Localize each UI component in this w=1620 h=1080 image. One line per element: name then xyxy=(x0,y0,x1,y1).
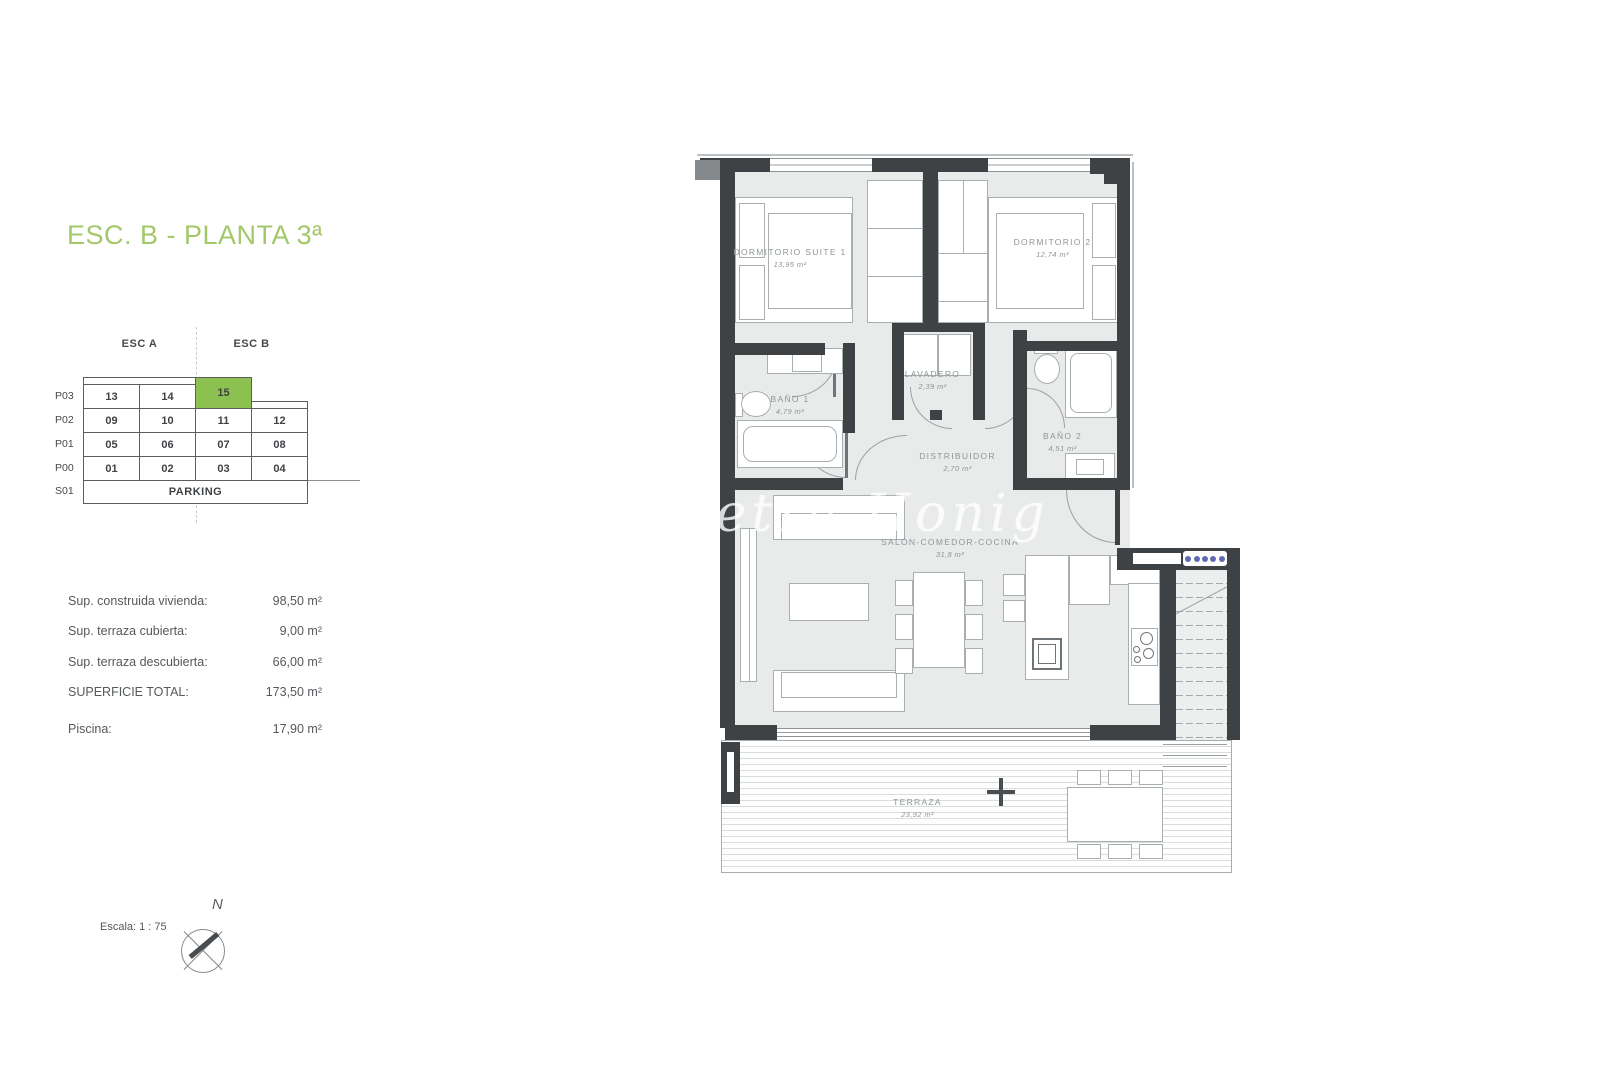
door-leaf xyxy=(845,433,848,478)
unit-cell-10: 10 xyxy=(139,408,196,433)
intercom-dot xyxy=(1210,556,1216,562)
roof-edge-line xyxy=(697,154,1133,156)
room-area: 23,92 m² xyxy=(860,809,975,820)
watermark: Petra Honig xyxy=(678,484,1050,544)
dining-chair xyxy=(965,580,983,606)
room-area: 4,79 m² xyxy=(745,406,835,417)
unit-cell-01: 01 xyxy=(83,456,140,481)
level-label-p02: P02 xyxy=(55,414,74,426)
surface-label: Sup. terraza cubierta: xyxy=(68,624,188,638)
room-area: 31,8 m² xyxy=(855,549,1045,560)
terrace-chair xyxy=(1077,844,1101,859)
terrace-chair xyxy=(1077,770,1101,785)
kitchen-cabinet xyxy=(1069,555,1110,605)
wall xyxy=(1090,725,1176,740)
stair-window-bar xyxy=(1133,553,1181,564)
intercom-dot xyxy=(1185,556,1191,562)
wall xyxy=(1013,330,1027,478)
parking-cell: PARKING xyxy=(83,480,308,504)
room-label-terrace: TERRAZA 23,92 m² xyxy=(860,796,975,820)
bed-dorm2-mattress xyxy=(996,213,1084,309)
room-label-dorm2: DORMITORIO 2 12,74 m² xyxy=(985,236,1120,260)
surface-value: 17,90 m² xyxy=(273,722,322,736)
surface-row-total: SUPERFICIE TOTAL: 173,50 m² xyxy=(68,685,322,699)
dining-chair xyxy=(895,614,913,640)
wall xyxy=(1227,548,1240,740)
wall xyxy=(720,158,735,728)
esc-a-header: ESC A xyxy=(83,338,196,350)
surface-row: Sup. terraza cubierta: 9,00 m² xyxy=(68,624,322,638)
terrace-step-line xyxy=(1163,744,1227,745)
unit-cell-02: 02 xyxy=(139,456,196,481)
room-area: 2,39 m² xyxy=(890,381,975,392)
surface-row: Sup. construida vivienda: 98,50 m² xyxy=(68,594,322,608)
unit-cell-15-highlighted: 15 xyxy=(195,377,252,409)
bathtub-bath1-inner xyxy=(743,426,837,462)
unit-cell-08: 08 xyxy=(251,432,308,457)
wall xyxy=(923,165,938,330)
surface-value: 66,00 m² xyxy=(273,655,322,669)
surface-value: 98,50 m² xyxy=(273,594,322,608)
surface-value: 173,50 m² xyxy=(266,685,322,699)
sink-bath2 xyxy=(1076,459,1104,475)
room-label-bath2: BAÑO 2 4,51 m² xyxy=(1015,430,1110,454)
window xyxy=(770,158,872,172)
window-seat-strip xyxy=(740,528,757,682)
intercom-dot xyxy=(1202,556,1208,562)
unit-cell-13: 13 xyxy=(83,384,140,409)
page: ESC. B - PLANTA 3ª ESC A ESC B P03 P02 P… xyxy=(0,0,1620,1080)
window xyxy=(988,158,1090,172)
cooktop-burner xyxy=(1134,656,1141,663)
pillow xyxy=(739,265,765,320)
wardrobe-right xyxy=(938,180,988,323)
room-label-laundry: LAVADERO 2,39 m² xyxy=(890,368,975,392)
surface-label: Piscina: xyxy=(68,722,112,736)
bar-stool xyxy=(1003,574,1025,596)
room-name: DORMITORIO 2 xyxy=(1014,237,1092,247)
terrace-pillar-slit xyxy=(727,752,734,792)
kitchen-sink xyxy=(1032,638,1062,670)
unit-cell-12: 12 xyxy=(251,408,308,433)
cooktop-burner xyxy=(1143,648,1154,659)
wall xyxy=(1160,570,1176,740)
intercom-panel xyxy=(1183,551,1227,566)
room-name: BAÑO 2 xyxy=(1043,431,1082,441)
room-area: 13,95 m² xyxy=(720,259,860,270)
survey-cross-marker xyxy=(987,778,1015,806)
room-area: 12,74 m² xyxy=(985,249,1120,260)
unit-cell-07: 07 xyxy=(195,432,252,457)
page-title: ESC. B - PLANTA 3ª xyxy=(67,220,323,251)
wardrobe-left xyxy=(867,180,923,323)
bar-stool xyxy=(1003,600,1025,622)
pillow xyxy=(1092,265,1116,320)
room-label-bath1: BAÑO 1 4,79 m² xyxy=(745,393,835,417)
scale-label: Escala: 1 : 75 xyxy=(100,921,167,933)
dining-chair xyxy=(965,614,983,640)
surface-label: SUPERFICIE TOTAL: xyxy=(68,685,189,699)
unit-cell-03: 03 xyxy=(195,456,252,481)
room-name: BAÑO 1 xyxy=(771,394,810,404)
terrace-step-line xyxy=(1163,766,1227,767)
room-name: LAVADERO xyxy=(905,369,960,379)
dining-chair xyxy=(895,580,913,606)
cooktop-burner xyxy=(1133,646,1140,653)
level-label-s01: S01 xyxy=(55,485,74,497)
stairwell xyxy=(1176,570,1227,740)
room-name: DISTRIBUIDOR xyxy=(919,451,996,461)
surface-label: Sup. terraza descubierta: xyxy=(68,655,208,669)
level-label-p00: P00 xyxy=(55,462,74,474)
room-label-suite1: DORMITORIO SUITE 1 13,95 m² xyxy=(720,246,860,270)
coffee-table xyxy=(789,583,869,621)
wall xyxy=(892,323,985,332)
wall-stub xyxy=(695,160,720,180)
sliding-glass-door xyxy=(777,728,1090,737)
level-label-p01: P01 xyxy=(55,438,74,450)
unit-cell-11: 11 xyxy=(195,408,252,433)
terrace-table xyxy=(1067,787,1163,842)
surface-label: Sup. construida vivienda: xyxy=(68,594,208,608)
level-label-p03: P03 xyxy=(55,390,74,402)
terrace-chair xyxy=(1139,770,1163,785)
facade-edge-line xyxy=(1132,162,1134,488)
surface-row-pool: Piscina: 17,90 m² xyxy=(68,722,322,736)
intercom-dot xyxy=(1194,556,1200,562)
unit-cell-09: 09 xyxy=(83,408,140,433)
unit-cell-06: 06 xyxy=(139,432,196,457)
intercom-dot xyxy=(1219,556,1225,562)
unit-cell-04: 04 xyxy=(251,456,308,481)
unit-cell-14: 14 xyxy=(139,384,196,409)
wall xyxy=(720,343,825,355)
room-area: 2,70 m² xyxy=(905,463,1010,474)
room-label-hall: DISTRIBUIDOR 2,70 m² xyxy=(905,450,1010,474)
wall xyxy=(1013,341,1117,351)
room-name: TERRAZA xyxy=(893,797,942,807)
shower-bath2-inner xyxy=(1070,353,1112,413)
dining-table xyxy=(913,572,965,668)
entry-door-leaf xyxy=(1115,488,1120,545)
dining-chair xyxy=(895,648,913,674)
unit-cell-05: 05 xyxy=(83,432,140,457)
wall xyxy=(1117,158,1130,488)
compass-north-label: N xyxy=(212,896,223,913)
terrace-chair xyxy=(1108,770,1132,785)
cooktop-burner xyxy=(1140,632,1153,645)
dining-chair xyxy=(965,648,983,674)
sink-bath1 xyxy=(792,352,822,372)
surface-row: Sup. terraza descubierta: 66,00 m² xyxy=(68,655,322,669)
terrace-chair xyxy=(1139,844,1163,859)
toilet-bath2 xyxy=(1034,354,1060,384)
terrace-chair xyxy=(1108,844,1132,859)
wall-door-post xyxy=(930,410,942,420)
wall xyxy=(725,725,777,740)
wall xyxy=(843,343,855,433)
esc-b-header: ESC B xyxy=(195,338,308,350)
room-area: 4,51 m² xyxy=(1015,443,1110,454)
surface-value: 9,00 m² xyxy=(280,624,322,638)
terrace-step-line xyxy=(1163,755,1227,756)
room-name: DORMITORIO SUITE 1 xyxy=(734,247,847,257)
sofa-bottom-seat xyxy=(781,672,897,698)
